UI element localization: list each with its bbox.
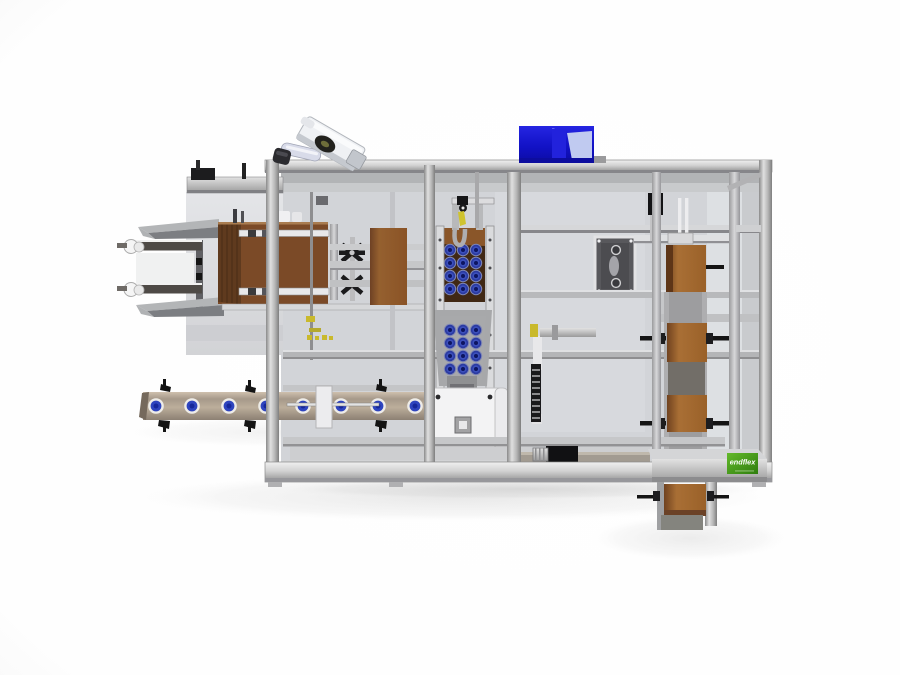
svg-text:endflex: endflex xyxy=(730,458,756,467)
